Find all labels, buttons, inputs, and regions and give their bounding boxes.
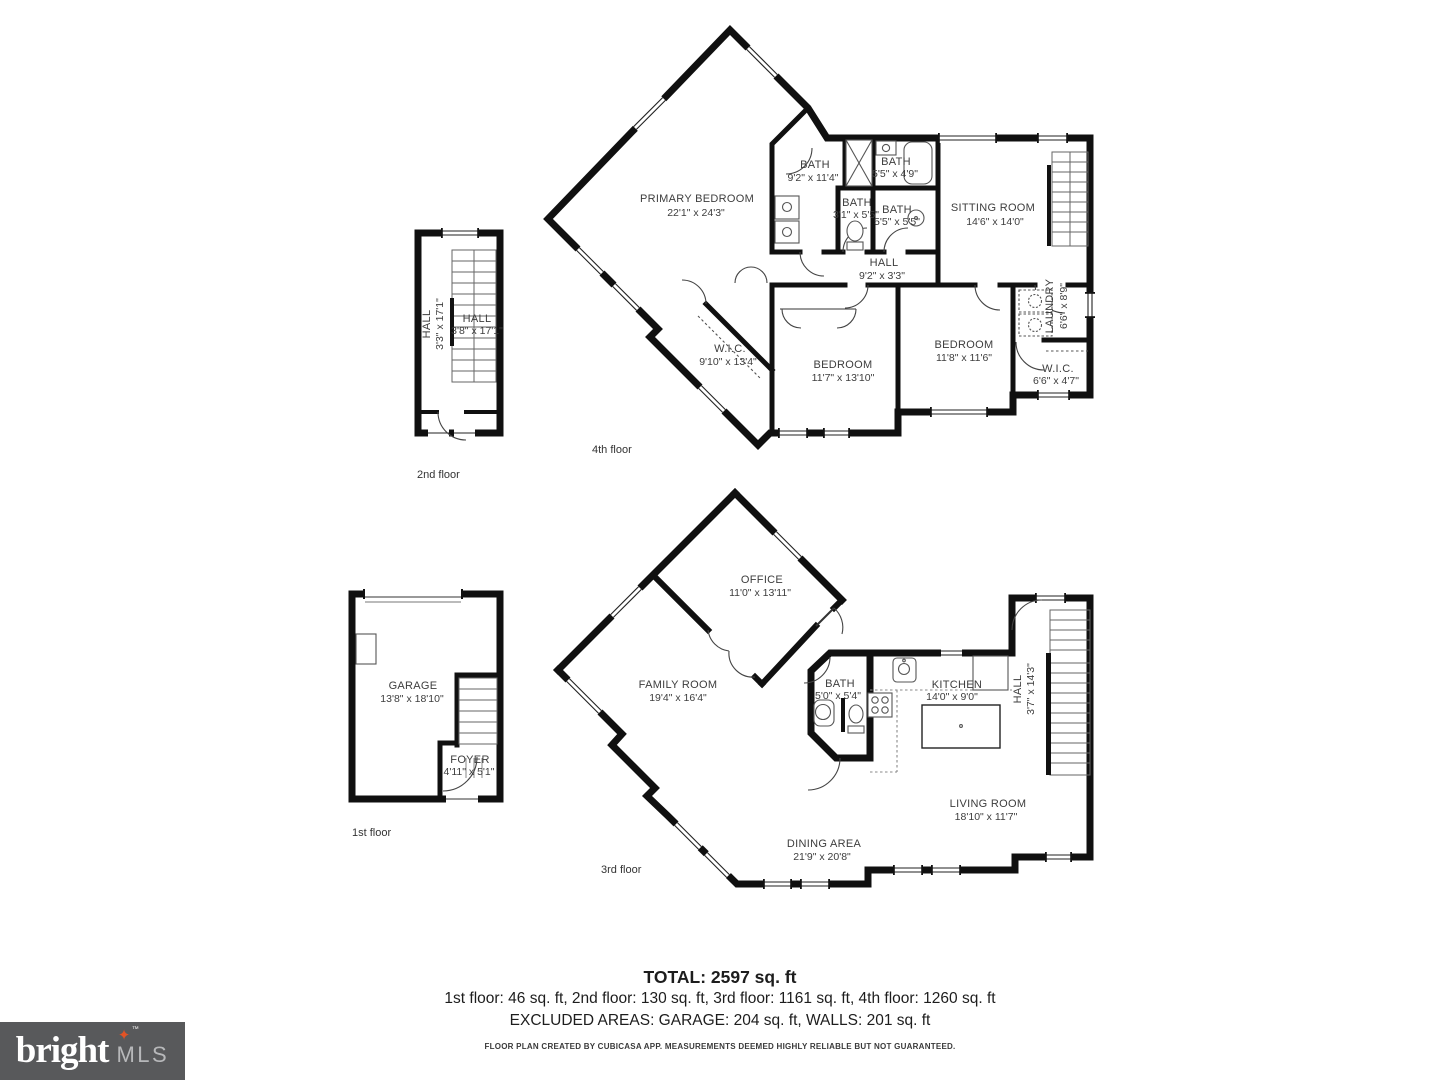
room-label-bath4: BATH [882, 204, 912, 216]
room-dims-dining-area: 21'9" x 20'8" [793, 851, 851, 863]
room-label-family-room: FAMILY ROOM [639, 679, 718, 691]
room-dims-hall-2f-right: 3'8" x 17'1" [451, 325, 503, 337]
room-label-bedroom2: BEDROOM [935, 339, 994, 351]
room-label-bath2: BATH [881, 156, 911, 168]
room-label-living-room: LIVING ROOM [950, 798, 1027, 810]
floor-3-caption: 3rd floor [601, 864, 642, 876]
logo-trademark: ™ [132, 1026, 139, 1033]
floor-4-caption: 4th floor [592, 444, 632, 456]
room-dims-office: 11'0" x 13'11" [729, 587, 791, 599]
floor-2-plan: HALL 3'3" x 17'1" HALL 3'8" x 17'1" 2nd … [417, 228, 503, 481]
room-dims-laundry: 6'6" x 8'9" [1058, 283, 1070, 329]
floor-1-fixtures [356, 634, 376, 664]
floor-4-plan: PRIMARY BEDROOM 22'1" x 24'3" BATH 9'2" … [548, 30, 1095, 456]
room-label-office: OFFICE [741, 574, 783, 586]
room-label-wic1: W.I.C. [714, 343, 746, 355]
room-dims-kitchen: 14'0" x 9'0" [926, 691, 978, 703]
logo-suffix-text: MLS [116, 1042, 169, 1068]
room-dims-hall-3f: 3'7" x 14'3" [1025, 663, 1037, 715]
room-dims-living-room: 18'10" x 11'7" [955, 811, 1018, 823]
room-label-bath-3f: BATH [825, 678, 855, 690]
floor-1-plan: GARAGE 13'8" x 18'10" FOYER 4'11" x 5'1"… [352, 589, 500, 839]
room-dims-primary-bedroom: 22'1" x 24'3" [667, 207, 725, 219]
room-dims-wic1: 9'10" x 13'4" [699, 356, 757, 368]
floor-4-stairs [1047, 152, 1088, 246]
room-dims-bath3: 3'1" x 5'5" [833, 209, 879, 221]
room-label-wic2: W.I.C. [1042, 363, 1074, 375]
room-dims-bath2: 5'5" x 4'9" [872, 168, 918, 180]
room-dims-family-room: 19'4" x 16'4" [649, 692, 707, 704]
total-area-text: TOTAL: 2597 sq. ft [0, 966, 1440, 988]
room-dims-wic2: 6'6" x 4'7" [1033, 375, 1079, 387]
room-dims-bath1: 9'2" x 11'4" [788, 172, 839, 184]
room-label-hall-4f: HALL [870, 257, 899, 269]
room-label-laundry: LAUNDRY [1044, 278, 1056, 333]
floor-1-labels: GARAGE 13'8" x 18'10" FOYER 4'11" x 5'1"… [352, 680, 495, 839]
room-dims-bath4: 5'5" x 5'5" [874, 216, 920, 228]
room-label-hall-2f-right: HALL [463, 313, 492, 325]
disclaimer-text: FLOOR PLAN CREATED BY CUBICASA APP. MEAS… [0, 1042, 1440, 1051]
floor-2-labels: HALL 3'3" x 17'1" HALL 3'8" x 17'1" 2nd … [417, 298, 503, 481]
floor-plan-canvas: PRIMARY BEDROOM 22'1" x 24'3" BATH 9'2" … [0, 0, 1440, 1080]
room-label-dining-area: DINING AREA [787, 838, 862, 850]
logo-brand-text: bright [16, 1032, 109, 1069]
room-label-kitchen: KITCHEN [932, 679, 982, 691]
room-label-bath1: BATH [800, 159, 830, 171]
summary-footer: TOTAL: 2597 sq. ft 1st floor: 46 sq. ft,… [0, 966, 1440, 1051]
floor-2-caption: 2nd floor [417, 469, 460, 481]
room-dims-sitting-room: 14'6" x 14'0" [966, 216, 1024, 228]
room-label-primary-bedroom: PRIMARY BEDROOM [640, 193, 754, 205]
room-dims-bedroom2: 11'8" x 11'6" [936, 352, 992, 364]
room-dims-garage: 13'8" x 18'10" [380, 693, 444, 705]
room-label-hall-2f-left: HALL [421, 310, 433, 339]
room-label-garage: GARAGE [389, 680, 438, 692]
room-dims-bedroom1: 11'7" x 13'10" [812, 372, 875, 384]
floor-areas-text: 1st floor: 46 sq. ft, 2nd floor: 130 sq.… [0, 988, 1440, 1010]
room-label-hall-3f: HALL [1012, 675, 1024, 704]
floor-1-caption: 1st floor [352, 827, 391, 839]
floor-3-plan: OFFICE 11'0" x 13'11" FAMILY ROOM 19'4" … [558, 493, 1090, 889]
floor-1-garage-door [363, 589, 463, 602]
room-label-bedroom1: BEDROOM [814, 359, 873, 371]
room-dims-bath-3f: 5'0" x 5'4" [815, 690, 861, 702]
room-label-bath3: BATH [842, 197, 872, 209]
room-dims-foyer: 4'11" x 5'1" [444, 766, 495, 778]
floor-3-stairs [1046, 610, 1090, 775]
room-dims-hall-4f: 9'2" x 3'3" [859, 270, 905, 282]
room-dims-hall-2f-left: 3'3" x 17'1" [434, 298, 446, 350]
room-label-sitting-room: SITTING ROOM [951, 202, 1035, 214]
floor-plan-page: { "floors": { "f4": { "caption": "4th fl… [0, 0, 1440, 1080]
bright-mls-logo: bright ✦ ™ MLS [0, 1022, 185, 1080]
excluded-areas-text: EXCLUDED AREAS: GARAGE: 204 sq. ft, WALL… [0, 1010, 1440, 1032]
logo-star-icon: ✦ [118, 1028, 131, 1043]
room-label-foyer: FOYER [450, 754, 489, 766]
